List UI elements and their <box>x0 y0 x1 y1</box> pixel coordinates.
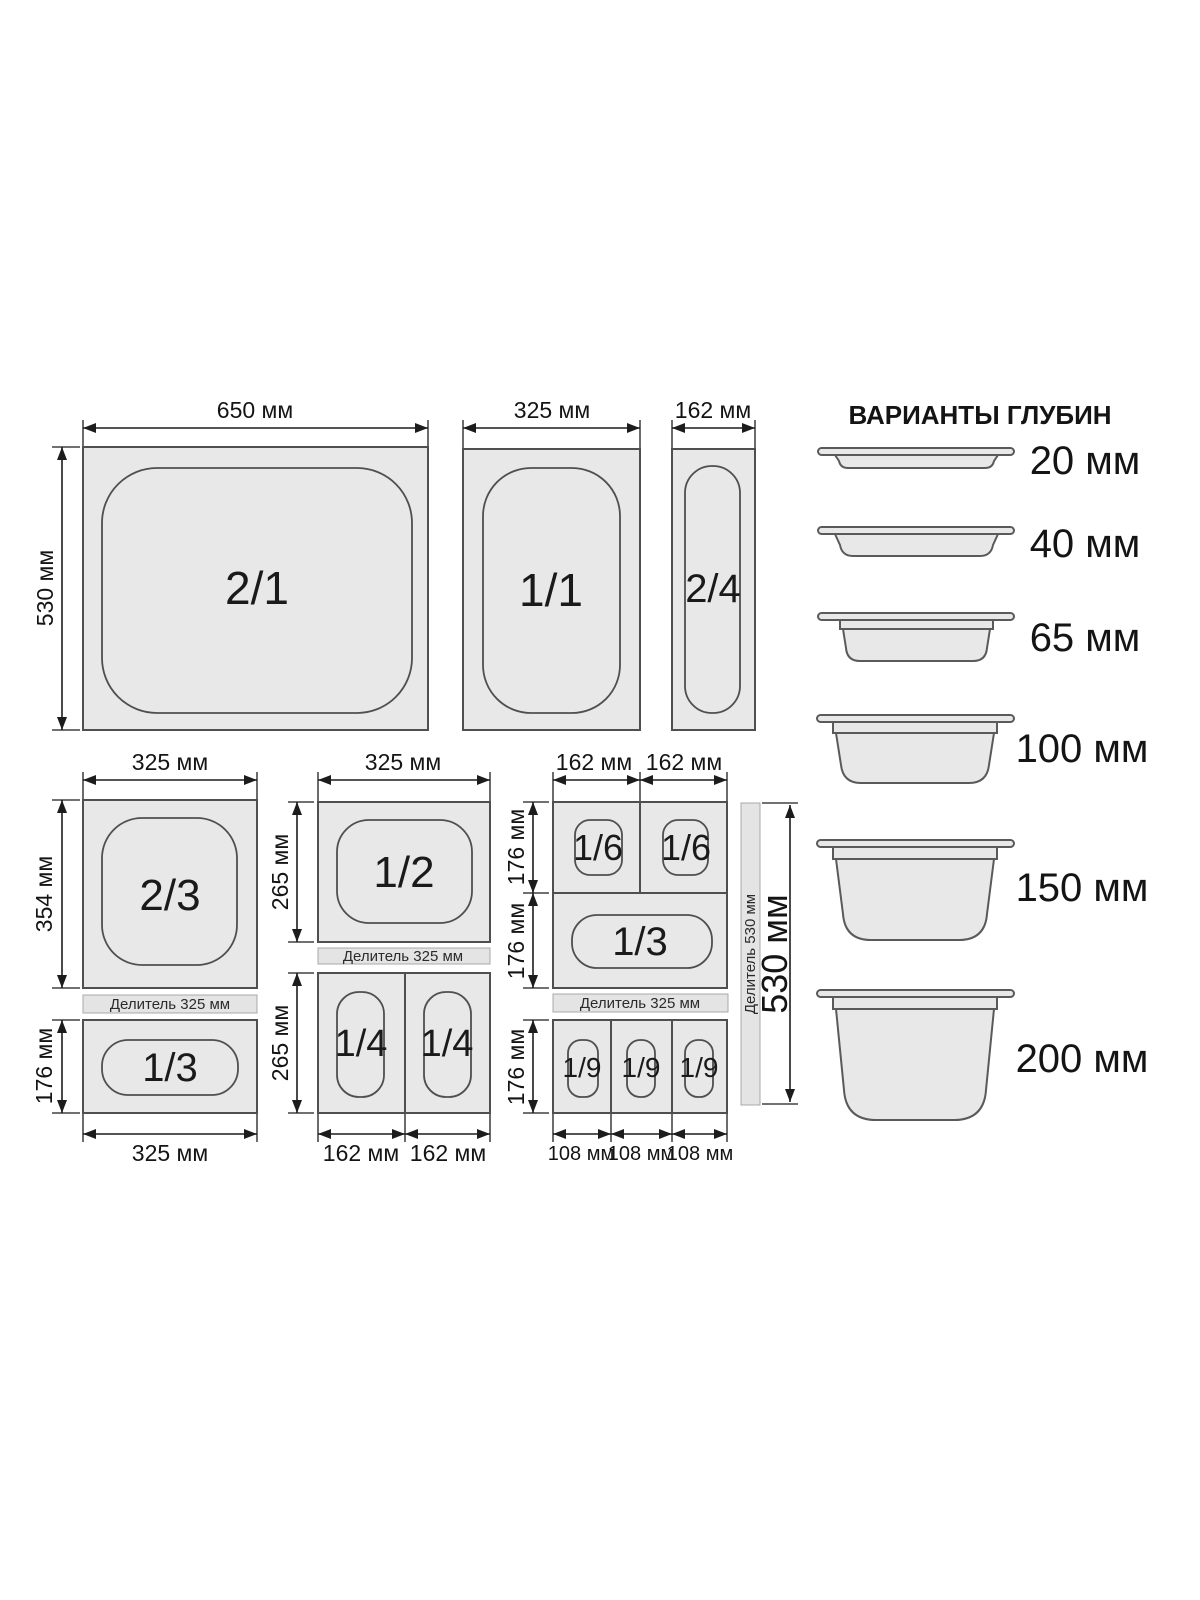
depth-options-title: ВАРИАНТЫ ГЛУБИН <box>848 400 1111 430</box>
dim-650: 650 мм <box>83 397 428 446</box>
pan-1-6-left-label: 1/6 <box>573 827 623 868</box>
divider-right: Делитель 325 мм <box>553 994 728 1012</box>
depth-pan-65-body <box>843 629 990 661</box>
dim-176-rt-top-label: 176 мм <box>503 809 529 885</box>
dim-354-label: 354 мм <box>31 856 57 932</box>
depth-20-label: 20 мм <box>1030 439 1141 483</box>
dim-108-1-label: 108 мм <box>548 1143 614 1165</box>
divider-left-label: Делитель 325 мм <box>110 996 230 1013</box>
depth-pan-100-neck <box>833 722 997 733</box>
pan-1-3-right-label: 1/3 <box>612 920 668 964</box>
dim-162-rt-right-label: 162 мм <box>646 749 722 775</box>
dim-162-bottom-right-label: 162 мм <box>410 1140 486 1166</box>
depth-pan-40: 40 мм <box>818 522 1140 566</box>
pans-1-6-1-3-block: 1/6 1/6 1/3 <box>553 802 727 988</box>
pans-1-4: 1/4 1/4 <box>318 973 490 1113</box>
dim-mid-325-top-label: 325 мм <box>365 749 441 775</box>
depth-pan-200-neck <box>833 997 997 1009</box>
divider-right-label: Делитель 325 мм <box>580 995 700 1012</box>
dim-325-top: 325 мм <box>463 397 640 448</box>
dims-162-bottom: 162 мм 162 мм <box>318 1114 490 1166</box>
divider-middle-label: Делитель 325 мм <box>343 948 463 965</box>
dim-530-left: 530 мм <box>32 447 80 730</box>
dim-108-3-label: 108 мм <box>667 1143 733 1165</box>
dim-162-rt-left-label: 162 мм <box>556 749 632 775</box>
depth-100-label: 100 мм <box>1016 727 1149 771</box>
dim-left-325-top: 325 мм <box>83 749 257 799</box>
depth-pan-150: 150 мм <box>817 840 1148 940</box>
pan-1-1: 1/1 <box>463 449 640 730</box>
pan-1-4-left-label: 1/4 <box>335 1023 388 1065</box>
dim-265-top: 265 мм <box>267 802 314 942</box>
dim-left-325-top-label: 325 мм <box>132 749 208 775</box>
depth-65-label: 65 мм <box>1030 616 1141 660</box>
depth-options: ВАРИАНТЫ ГЛУБИН 20 мм 40 мм 65 мм 100 мм <box>817 400 1148 1120</box>
dim-mid-325-top: 325 мм <box>318 749 490 801</box>
pan-1-3-left: 1/3 <box>83 1020 257 1113</box>
pan-2-3-label: 2/3 <box>139 871 200 920</box>
pan-1-6-right-label: 1/6 <box>661 827 711 868</box>
depth-pan-40-rim <box>818 527 1014 534</box>
depth-pan-150-body <box>836 859 994 940</box>
pan-1-9-3-label: 1/9 <box>680 1052 719 1083</box>
dim-265-bottom-label: 265 мм <box>267 1005 293 1081</box>
pan-2-1-label: 2/1 <box>225 562 289 614</box>
divider-left: Делитель 325 мм <box>83 995 257 1013</box>
depth-pan-65: 65 мм <box>818 613 1140 661</box>
depth-pan-65-neck <box>840 620 993 629</box>
pan-1-3-left-label: 1/3 <box>142 1046 198 1090</box>
depth-pan-100: 100 мм <box>817 715 1148 783</box>
dim-325-label: 325 мм <box>514 397 590 423</box>
dim-162-label: 162 мм <box>675 397 751 423</box>
dim-530-left-label: 530 мм <box>32 550 58 626</box>
dim-265-top-label: 265 мм <box>267 834 293 910</box>
depth-pan-200: 200 мм <box>817 990 1148 1120</box>
middle-group: 325 мм 1/2 265 мм Делитель 325 мм 1/4 1/… <box>267 749 490 1166</box>
divider-middle: Делитель 325 мм <box>318 948 490 965</box>
depth-pan-100-rim <box>817 715 1014 722</box>
pan-2-4-label: 2/4 <box>685 567 741 611</box>
dim-176-left: 176 мм <box>31 1020 80 1113</box>
dim-108-2-label: 108 мм <box>608 1143 674 1165</box>
dim-176-left-label: 176 мм <box>31 1028 57 1104</box>
pans-1-9: 1/9 1/9 1/9 <box>553 1020 727 1113</box>
gastronorm-sizes-diagram: 2/1 1/1 2/4 650 мм 325 мм <box>0 0 1200 1600</box>
pan-1-2-label: 1/2 <box>373 848 434 897</box>
dim-354: 354 мм <box>31 800 80 988</box>
dim-176-rt-mid: 176 мм <box>503 893 549 988</box>
pan-2-4: 2/4 <box>672 449 755 730</box>
pan-2-3: 2/3 <box>83 800 257 988</box>
dim-162-bottom-left-label: 162 мм <box>323 1140 399 1166</box>
dim-650-label: 650 мм <box>217 397 293 423</box>
depth-150-label: 150 мм <box>1016 866 1149 910</box>
depth-pan-100-body <box>836 733 994 783</box>
pan-1-2: 1/2 <box>318 802 490 942</box>
depth-pan-20-rim <box>818 448 1014 455</box>
depth-pan-200-body <box>836 1009 994 1120</box>
depth-pan-20: 20 мм <box>818 439 1140 483</box>
pan-1-4-right-label: 1/4 <box>421 1023 474 1065</box>
depth-pan-65-rim <box>818 613 1014 620</box>
dims-162-right-top: 162 мм 162 мм <box>553 749 727 801</box>
dim-left-325-bottom-label: 325 мм <box>132 1140 208 1166</box>
pan-1-9-2-label: 1/9 <box>622 1052 661 1083</box>
dim-530-right-label: 530 мм <box>754 894 795 1014</box>
right-group: 162 мм 162 мм 1/6 1/6 1/3 176 мм 176 мм <box>503 749 798 1165</box>
dim-265-bottom: 265 мм <box>267 973 314 1113</box>
diagram-canvas: 2/1 1/1 2/4 650 мм 325 мм <box>0 0 1200 1600</box>
dim-176-rt-bottom-label: 176 мм <box>503 1029 529 1105</box>
dim-176-rt-mid-label: 176 мм <box>503 903 529 979</box>
dim-left-325-bottom: 325 мм <box>83 1114 257 1166</box>
dim-176-rt-bottom: 176 мм <box>503 1020 549 1113</box>
dim-530-right: 530 мм <box>754 803 798 1104</box>
depth-pan-200-rim <box>817 990 1014 997</box>
depth-pan-20-body <box>835 455 998 468</box>
depth-pan-150-neck <box>833 847 997 859</box>
dim-162-top: 162 мм <box>672 397 755 448</box>
top-row: 2/1 1/1 2/4 650 мм 325 мм <box>32 397 755 730</box>
pan-1-9-1-label: 1/9 <box>563 1052 602 1083</box>
left-group: 325 мм 2/3 354 мм Делитель 325 мм 1/3 17… <box>31 749 257 1166</box>
dim-176-rt-top: 176 мм <box>503 802 549 893</box>
pan-2-1: 2/1 <box>83 447 428 730</box>
depth-40-label: 40 мм <box>1030 522 1141 566</box>
pan-1-1-label: 1/1 <box>519 564 583 616</box>
depth-pan-40-body <box>835 534 998 556</box>
depth-200-label: 200 мм <box>1016 1037 1149 1081</box>
depth-pan-150-rim <box>817 840 1014 847</box>
dims-108: 108 мм 108 мм 108 мм <box>548 1114 733 1165</box>
